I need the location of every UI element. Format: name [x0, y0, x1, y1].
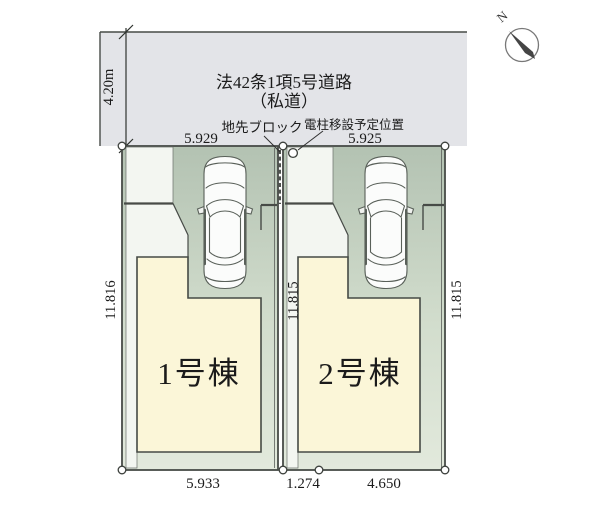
compass-needle [509, 31, 535, 59]
utility-pole-circle-icon [289, 149, 298, 158]
dim-bottom-3: 4.650 [367, 476, 401, 492]
survey-point-icon [441, 466, 449, 474]
site-plan-drawing: 法42条1項5号道路 （私道） 4.20m N 1号棟 [0, 0, 600, 522]
building-2-label: 2号棟 [318, 356, 402, 391]
lot-1: 1号棟 [122, 146, 278, 470]
dim-top-right: 5.925 [348, 131, 382, 147]
survey-point-icon [118, 466, 126, 474]
car-top-view-icon [198, 157, 253, 289]
survey-point-icon [279, 466, 287, 474]
dim-left-depth: 11.816 [103, 280, 119, 319]
building-1-label: 1号棟 [157, 356, 241, 391]
private-road-label: （私道） [250, 92, 318, 111]
survey-point-icon [118, 142, 126, 150]
lot-2: 2号棟 [283, 146, 445, 470]
dim-bottom-2: 1.274 [286, 476, 320, 492]
north-label: N [494, 7, 511, 25]
dim-right-depth: 11.815 [449, 280, 465, 319]
site-plan: 法42条1項5号道路 （私道） 4.20m N 1号棟 [0, 0, 600, 522]
road-name-label: 法42条1項5号道路 [216, 73, 352, 92]
dim-top-left: 5.929 [184, 131, 218, 147]
survey-point-icon [315, 466, 323, 474]
compass-icon: N [494, 7, 539, 61]
frontage-block-label: 地先ブロック [222, 119, 303, 135]
utility-pole-label: 電柱移設予定位置 [304, 117, 404, 132]
survey-point-icon [279, 142, 287, 150]
survey-point-icon [441, 142, 449, 150]
road-width-label: 4.20m [101, 68, 117, 105]
dim-middle-depth: 11.815 [286, 281, 302, 320]
dim-bottom-1: 5.933 [186, 476, 220, 492]
car-top-view-icon [359, 157, 414, 289]
